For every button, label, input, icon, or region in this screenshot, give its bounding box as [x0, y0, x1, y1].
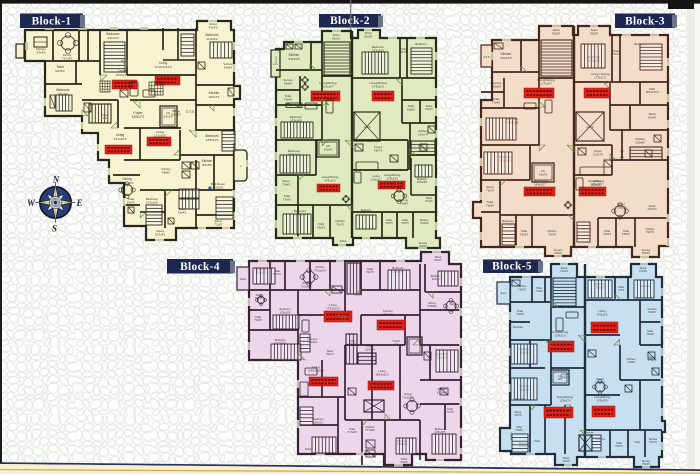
svg-text:10'6x7'9: 10'6x7'9	[365, 347, 375, 351]
svg-text:7'6x4'0: 7'6x4'0	[284, 97, 293, 101]
svg-text:6'5x5'3: 6'5x5'3	[317, 225, 325, 229]
svg-text:6'0x6'0: 6'0x6'0	[284, 81, 293, 85]
svg-text:6'5x5'3: 6'5x5'3	[622, 233, 630, 236]
svg-text:9'0x8'0: 9'0x8'0	[648, 311, 656, 314]
svg-text:6'0x4'0: 6'0x4'0	[648, 115, 656, 119]
svg-text:Toilet: Toilet	[634, 441, 640, 444]
svg-text:Block-5: Block-5	[492, 261, 532, 273]
svg-text:Sitout: Sitout	[156, 229, 164, 233]
svg-text:7'6x5'0: 7'6x5'0	[283, 197, 292, 201]
svg-text:14'5x11'3: 14'5x11'3	[324, 179, 336, 183]
svg-text:16'5x7'0: 16'5x7'0	[132, 115, 145, 119]
svg-text:7'6x7'0: 7'6x7'0	[486, 188, 495, 192]
svg-text:6'9x8'5: 6'9x8'5	[162, 170, 170, 174]
svg-text:Bedroom: Bedroom	[361, 208, 372, 212]
svg-text:Toilet: Toilet	[408, 104, 415, 108]
svg-text:9'5x3'0: 9'5x3'0	[554, 252, 562, 255]
svg-text:6'0x7'0: 6'0x7'0	[366, 271, 374, 274]
svg-text:7'0x7'0: 7'0x7'0	[336, 222, 344, 226]
svg-text:7'9x3'9: 7'9x3'9	[560, 270, 568, 273]
svg-text:7'7x11'6: 7'7x11'6	[213, 186, 224, 190]
svg-text:7'1.5x8'0: 7'1.5x8'0	[365, 429, 375, 432]
svg-text:A.T.S: A.T.S	[483, 55, 489, 59]
svg-text:Bedroom: Bedroom	[392, 266, 404, 270]
svg-text:Sitout: Sitout	[486, 185, 493, 189]
svg-text:7'9x3'0: 7'9x3'0	[562, 460, 570, 463]
svg-text:5'6x7'0: 5'6x7'0	[326, 353, 334, 356]
svg-text:Lift: Lift	[541, 169, 545, 173]
svg-text:17'5x13'3: 17'5x13'3	[386, 177, 398, 181]
svg-text:Living: Living	[372, 174, 380, 178]
svg-text:10'0x3'0: 10'0x3'0	[155, 233, 166, 237]
svg-text:7'6.7x9'0: 7'6.7x9'0	[62, 56, 73, 60]
svg-text:Wardrobe: Wardrobe	[515, 398, 526, 401]
svg-text:Foyer: Foyer	[594, 149, 601, 153]
svg-text:10'5x7'9: 10'5x7'9	[418, 132, 428, 136]
svg-text:Living/Dining: Living/Dining	[384, 173, 401, 177]
svg-text:4'0w: 4'0w	[103, 118, 108, 120]
svg-text:Toilet: Toilet	[493, 97, 500, 101]
svg-text:Foyer: Foyer	[561, 372, 568, 376]
svg-text:10'5x10'5: 10'5x10'5	[280, 310, 291, 314]
svg-text:5'3x7'9: 5'3x7'9	[401, 222, 409, 225]
svg-text:10'0x11'3: 10'0x11'3	[116, 73, 129, 77]
svg-text:7'6x5'0: 7'6x5'0	[516, 313, 524, 316]
svg-text:Living/Dining: Living/Dining	[532, 179, 549, 183]
svg-text:6'7x4'0: 6'7x4'0	[425, 200, 433, 203]
svg-text:13'9x11'6: 13'9x11'6	[554, 333, 566, 337]
svg-text:6'5x5'3: 6'5x5'3	[520, 232, 528, 236]
svg-text:9'0x3'0: 9'0x3'0	[209, 26, 218, 30]
svg-text:6'0x7'0: 6'0x7'0	[273, 273, 281, 276]
svg-text:7'0x5'0: 7'0x5'0	[254, 319, 262, 322]
svg-text:9'0x10'5: 9'0x10'5	[500, 56, 511, 60]
svg-text:3'9x7'9: 3'9x7'9	[374, 149, 383, 153]
svg-text:Pass: Pass	[102, 114, 108, 117]
svg-text:9'0x9'0: 9'0x9'0	[37, 51, 46, 55]
svg-text:11'2x16'7: 11'2x16'7	[322, 85, 334, 89]
svg-text:Service: Service	[223, 62, 233, 66]
svg-text:E: E	[76, 198, 83, 208]
svg-text:Block-4: Block-4	[180, 261, 220, 273]
svg-text:7'7x3'0: 7'7x3'0	[214, 222, 223, 226]
svg-text:11'7x16'7: 11'7x16'7	[540, 82, 552, 86]
svg-text:Toilet: Toilet	[285, 94, 292, 98]
svg-text:6'0x6'0: 6'0x6'0	[224, 65, 233, 69]
svg-text:10'0x10'0: 10'0x10'0	[146, 201, 158, 205]
svg-text:Sitout: Sitout	[340, 239, 347, 243]
svg-text:8'4x10'0: 8'4x10'0	[171, 112, 181, 116]
svg-text:6'0x5'0: 6'0x5'0	[55, 69, 65, 73]
svg-text:7'x7'6: 7'x7'6	[618, 289, 625, 292]
svg-text:6'0x5'6: 6'0x5'6	[324, 147, 333, 151]
svg-text:Bedroom: Bedroom	[294, 209, 306, 213]
svg-text:O.T.S: O.T.S	[186, 110, 194, 114]
svg-text:4'7x12'5: 4'7x12'5	[648, 359, 657, 362]
svg-text:Toilet: Toilet	[128, 197, 135, 201]
svg-text:14'5x13'7: 14'5x13'7	[534, 183, 546, 187]
svg-text:(7'9x9'0): (7'9x9'0)	[427, 305, 436, 308]
svg-text:7'6x5'0: 7'6x5'0	[515, 429, 523, 432]
svg-text:17'9.5x11'0: 17'9.5x11'0	[326, 307, 340, 311]
svg-text:11'5x8'0: 11'5x8'0	[635, 140, 645, 144]
svg-text:Foyer: Foyer	[366, 344, 373, 348]
svg-text:7'0x4'0: 7'0x4'0	[535, 290, 543, 293]
svg-text:Wardrobe: Wardrobe	[513, 326, 524, 329]
svg-text:13'9x13'9: 13'9x13'9	[597, 398, 608, 402]
svg-text:7'6x5'0: 7'6x5'0	[646, 333, 654, 336]
svg-text:Bedroom: Bedroom	[416, 42, 428, 46]
svg-text:7'6x4'0: 7'6x4'0	[492, 100, 501, 104]
svg-text:7'6x7'6: 7'6x7'6	[612, 53, 620, 56]
svg-text:12'1x10'5: 12'1x10'5	[114, 137, 127, 141]
svg-text:10'5x10'5: 10'5x10'5	[417, 181, 428, 184]
svg-text:Serv.: Serv.	[501, 292, 507, 295]
svg-text:Toilet: Toilet	[534, 440, 540, 443]
svg-text:12'5x11'7: 12'5x11'7	[370, 178, 382, 182]
svg-text:9'0x10'5: 9'0x10'5	[288, 57, 299, 61]
svg-text:9'0x3'9: 9'0x3'9	[332, 36, 340, 40]
svg-text:7'0x7'9: 7'0x7'9	[446, 411, 454, 414]
svg-text:9'0x7'9: 9'0x7'9	[649, 441, 657, 444]
svg-text:Bedroom: Bedroom	[502, 219, 514, 223]
svg-text:6'0x7'0: 6'0x7'0	[127, 200, 136, 204]
svg-text:4'0x12'0: 4'0x12'0	[647, 208, 657, 211]
svg-text:21'9x7'0: 21'9x7'0	[593, 153, 604, 157]
svg-text:Living: Living	[329, 303, 337, 307]
svg-text:Kitchen: Kitchen	[383, 309, 393, 313]
svg-text:5'3x7'9: 5'3x7'9	[385, 222, 393, 225]
svg-text:9'0x3'9: 9'0x3'9	[590, 31, 598, 35]
svg-text:6'0x7'9: 6'0x7'9	[615, 445, 623, 448]
svg-text:6'0x4'0: 6'0x4'0	[425, 108, 433, 111]
svg-text:Foyer: Foyer	[374, 145, 381, 149]
svg-text:12'1x10'5: 12'1x10'5	[154, 134, 166, 138]
svg-text:18'6.5x11'0: 18'6.5x11'0	[375, 372, 389, 376]
svg-text:Living/Dining: Living/Dining	[322, 175, 339, 179]
svg-text:Living/Dining: Living/Dining	[557, 395, 573, 399]
svg-text:Up: Up	[620, 149, 624, 153]
svg-text:Service: Service	[492, 81, 502, 85]
svg-text:9'0x7'9: 9'0x7'9	[646, 231, 654, 234]
svg-text:5'0x7'0: 5'0x7'0	[514, 414, 522, 417]
svg-text:Sitout: Sitout	[240, 278, 246, 281]
svg-text:17'9x11'3: 17'9x11'3	[594, 76, 606, 80]
svg-text:Lift: Lift	[394, 343, 397, 346]
svg-text:O.T.S: O.T.S	[587, 125, 594, 129]
svg-text:13'9x13'9: 13'9x13'9	[559, 398, 571, 402]
svg-text:6'6x4'0: 6'6x4'0	[178, 210, 187, 214]
svg-text:Living: Living	[378, 369, 386, 373]
svg-text:Dn: Dn	[620, 155, 624, 159]
svg-text:8'0x5'0: 8'0x5'0	[407, 107, 416, 111]
svg-text:S: S	[52, 224, 57, 234]
svg-text:6'5x5'3: 6'5x5'3	[603, 233, 611, 236]
svg-text:Toilet: Toilet	[179, 207, 186, 211]
svg-text:Living: Living	[598, 309, 606, 313]
svg-text:Block-3: Block-3	[625, 16, 665, 28]
svg-text:7'6.5x10'9: 7'6.5x10'9	[314, 268, 326, 272]
svg-text:7'0x9'0: 7'0x9'0	[400, 201, 408, 205]
svg-text:(19'6.5x10'9): (19'6.5x10'9)	[308, 369, 324, 373]
svg-text:6'0x7'0: 6'0x7'0	[539, 172, 548, 176]
svg-text:13'5x11'3: 13'5x11'3	[206, 138, 219, 142]
svg-text:7'1.5x4'0: 7'1.5x4'0	[347, 431, 357, 434]
svg-text:9'0x3'9: 9'0x3'9	[364, 34, 372, 38]
svg-text:Kitchen: Kitchen	[418, 129, 428, 133]
svg-text:7'0x4'0: 7'0x4'0	[348, 343, 356, 346]
svg-text:9'0x3'9: 9'0x3'9	[552, 31, 560, 35]
svg-text:Living: Living	[593, 179, 601, 183]
svg-text:Toilet: Toilet	[487, 200, 494, 204]
svg-text:17'9x11'0: 17'9x11'0	[382, 313, 394, 317]
svg-text:N: N	[52, 175, 60, 185]
svg-text:7'9x10'9: 7'9x10'9	[420, 222, 429, 225]
svg-text:8'0x8'0: 8'0x8'0	[202, 163, 212, 167]
svg-text:Toilet: Toilet	[284, 194, 291, 198]
svg-text:10'0x7'1: 10'0x7'1	[208, 95, 219, 99]
svg-text:Sitout: Sitout	[450, 303, 457, 306]
svg-text:7'9x9'3: 7'9x9'3	[518, 287, 526, 291]
svg-text:Lift: Lift	[326, 144, 330, 148]
svg-text:Sitout: Sitout	[214, 219, 221, 223]
svg-text:10'8.2x4'0.5: 10'8.2x4'0.5	[645, 91, 659, 94]
svg-text:7'0x4'0: 7'0x4'0	[282, 182, 291, 186]
svg-text:9'0x3'0: 9'0x3'0	[400, 461, 408, 464]
svg-text:12'5x11'7: 12'5x11'7	[591, 183, 603, 187]
svg-text:6'0x6'0: 6'0x6'0	[493, 84, 502, 88]
svg-text:13'9x11'6: 13'9x11'6	[596, 312, 608, 316]
svg-text:17'5x11'3: 17'5x11'3	[372, 85, 384, 89]
svg-text:9'0x10'0: 9'0x10'0	[107, 36, 118, 40]
svg-text:7'6x7'6: 7'6x7'6	[399, 51, 407, 54]
svg-text:Sitout: Sitout	[282, 179, 289, 183]
svg-text:Kitchen: Kitchen	[635, 137, 645, 141]
svg-text:Service: Service	[283, 78, 293, 82]
svg-text:11'0x9'0: 11'0x9'0	[207, 37, 218, 41]
svg-text:23'9x7'0: 23'9x7'0	[560, 375, 570, 379]
svg-text:9'0x3'9: 9'0x3'9	[639, 270, 647, 273]
svg-text:8'5x3'0: 8'5x3'0	[642, 463, 650, 466]
svg-text:7'9x10'9.5: 7'9x10'9.5	[402, 395, 414, 399]
svg-text:O.T.S: O.T.S	[364, 125, 371, 129]
svg-text:7'0x7'9: 7'0x7'9	[548, 232, 556, 236]
svg-text:8'5x3'0: 8'5x3'0	[642, 252, 650, 255]
svg-text:7'0x9'0: 7'0x9'0	[627, 361, 635, 364]
svg-text:Block-1: Block-1	[32, 16, 72, 28]
svg-text:12'10.5x12'0: 12'10.5x12'0	[154, 65, 171, 69]
svg-text:W: W	[27, 198, 36, 208]
svg-text:12'5x9'3: 12'5x9'3	[313, 420, 323, 424]
svg-text:7'6x5'0: 7'6x5'0	[486, 203, 495, 207]
svg-text:7'6.5x10'6: 7'6.5x10'6	[300, 284, 312, 288]
svg-text:9'0x3'0: 9'0x3'0	[434, 259, 442, 262]
svg-text:Sitout: Sitout	[305, 448, 312, 451]
svg-text:8'1.5x9'0: 8'1.5x9'0	[437, 390, 448, 394]
svg-text:8'0x3'0: 8'0x3'0	[419, 245, 427, 248]
